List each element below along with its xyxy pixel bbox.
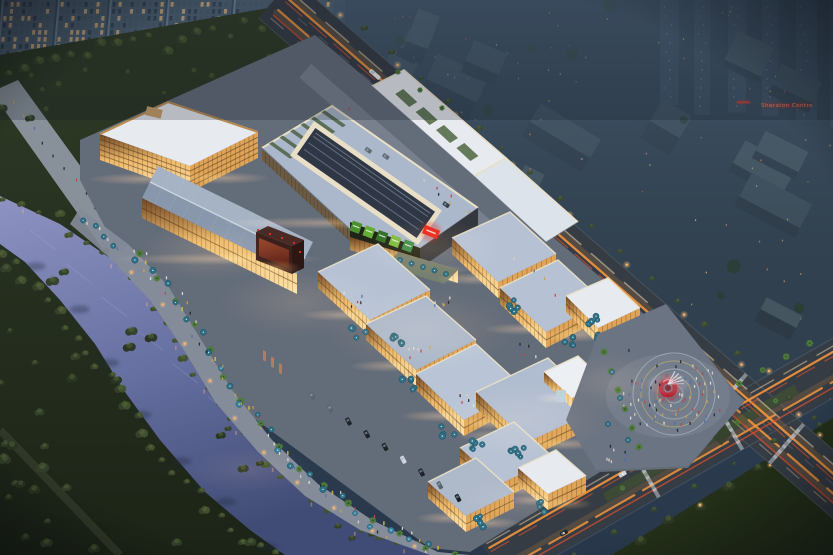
vignette [0, 0, 833, 555]
aerial-mall-rendering: Sheraton Centre Sheraton Centre [0, 0, 833, 555]
rendering-canvas: Sheraton Centre Sheraton Centre [0, 0, 833, 555]
